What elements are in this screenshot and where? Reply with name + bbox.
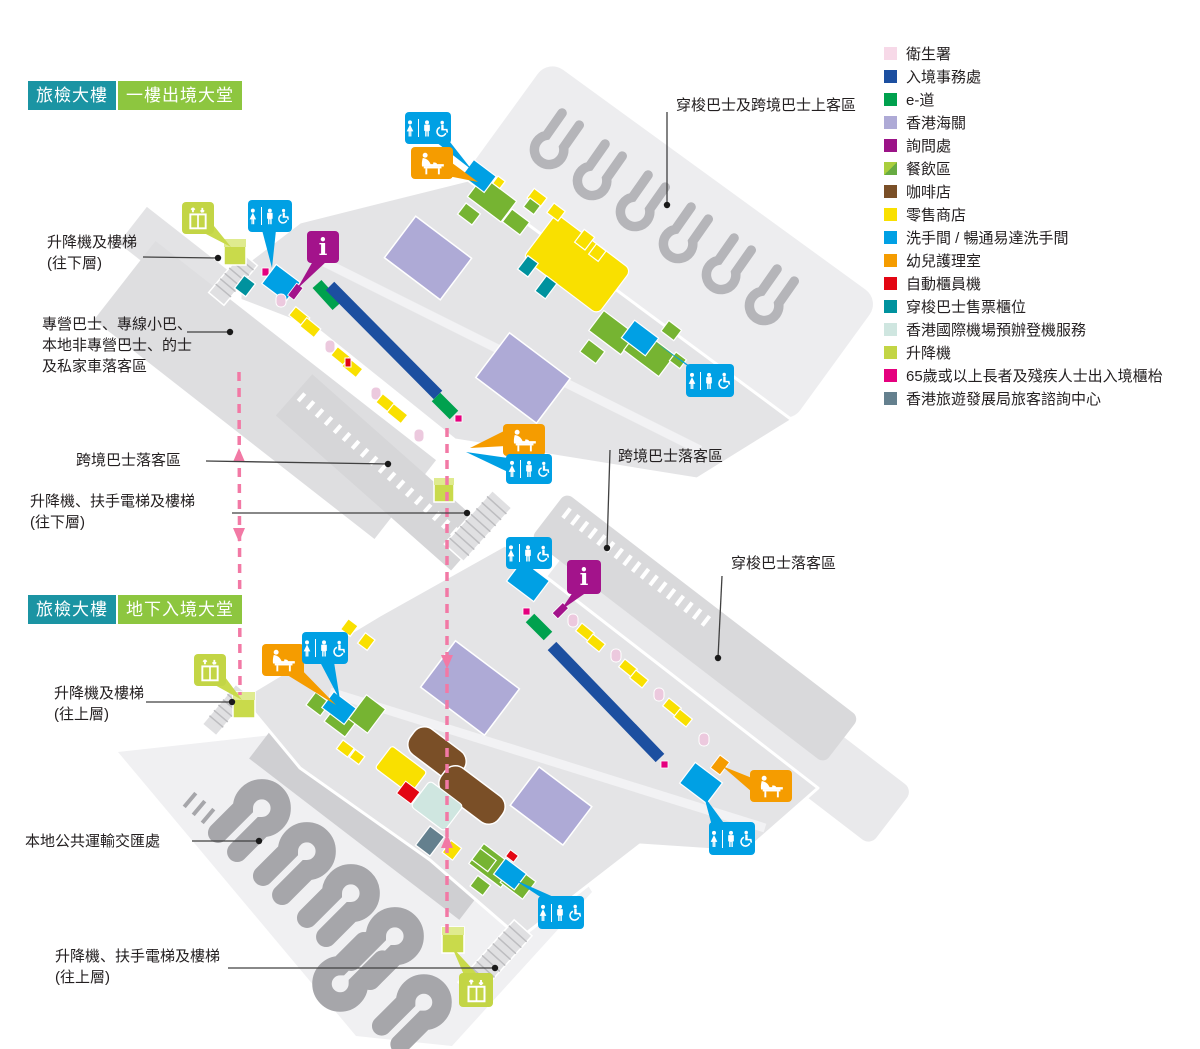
legend-swatch: [884, 254, 897, 267]
legend-item: 自動櫃員機: [884, 272, 1163, 295]
legend-label: 幼兒護理室: [906, 250, 981, 271]
hall-name: 一樓出境大堂: [118, 81, 242, 110]
upper-floor-map: [94, 59, 880, 570]
lower-hall-title: 旅檢大樓 地下入境大堂: [28, 595, 242, 624]
building-name: 旅檢大樓: [28, 81, 116, 110]
toilet-icon: [248, 200, 292, 232]
label-crossborder-dropoff-right: 跨境巴士落客區: [618, 446, 723, 467]
legend-label: 自動櫃員機: [906, 273, 981, 294]
legend-swatch: [884, 139, 897, 152]
toilet-icon: [302, 632, 348, 664]
baby-care-icon: [262, 644, 304, 676]
baby-care-icon: [503, 424, 545, 456]
building-name: 旅檢大樓: [28, 595, 116, 624]
legend-label: 詢問處: [906, 135, 951, 156]
legend: 衛生署 入境事務處 e-道 香港海關 詢問處 餐飲區 咖啡店 零售商店 洗手間 …: [884, 42, 1163, 410]
legend-item: 咖啡店: [884, 180, 1163, 203]
legend-swatch: [884, 300, 897, 313]
legend-label: 香港國際機場預辦登機服務: [906, 319, 1086, 340]
baby-care-icon: [411, 147, 453, 179]
label-public-transport-interchange: 本地公共運輸交匯處: [25, 831, 160, 852]
legend-swatch: [884, 208, 897, 221]
toilet-icon: [506, 537, 552, 569]
information-icon: i: [307, 231, 339, 263]
legend-item: 香港海關: [884, 111, 1163, 134]
legend-swatch: [884, 47, 897, 60]
toilet-icon: [709, 822, 755, 855]
legend-item: 餐飲區: [884, 157, 1163, 180]
lift-icon: [194, 654, 226, 686]
legend-item: 升降機: [884, 341, 1163, 364]
label-shuttle-dropoff: 穿梭巴士落客區: [731, 553, 836, 574]
legend-swatch: [884, 369, 897, 382]
legend-label: 入境事務處: [906, 66, 981, 87]
legend-item: 香港國際機場預辦登機服務: [884, 318, 1163, 341]
label-lift-escalator-down: 升降機、扶手電梯及樓梯 (往下層): [30, 491, 195, 533]
legend-swatch: [884, 392, 897, 405]
legend-item: 香港旅遊發展局旅客諮詢中心: [884, 387, 1163, 410]
legend-swatch: [884, 231, 897, 244]
baby-care-icon: [750, 770, 792, 802]
legend-label: 餐飲區: [906, 158, 951, 179]
legend-item: 65歲或以上長者及殘疾人士出入境櫃枱: [884, 364, 1163, 387]
lift-block-upper-centre: [434, 478, 454, 502]
label-crossborder-dropoff-left: 跨境巴士落客區: [76, 450, 181, 471]
legend-label: 香港旅遊發展局旅客諮詢中心: [906, 388, 1101, 409]
legend-swatch: [884, 116, 897, 129]
legend-swatch: [884, 277, 897, 290]
label-shuttle-crossborder-boarding: 穿梭巴士及跨境巴士上客區: [676, 95, 856, 116]
legend-item: 洗手間 / 暢通易達洗手間: [884, 226, 1163, 249]
legend-label: 咖啡店: [906, 181, 951, 202]
legend-item: 穿梭巴士售票櫃位: [884, 295, 1163, 318]
legend-label: 洗手間 / 暢通易達洗手間: [906, 227, 1069, 248]
information-icon: i: [567, 560, 601, 594]
toilet-icon: [538, 896, 584, 929]
legend-label: 零售商店: [906, 204, 966, 225]
toilet-icon: [686, 364, 734, 397]
legend-label: 升降機: [906, 342, 951, 363]
legend-label: 穿梭巴士售票櫃位: [906, 296, 1026, 317]
border-facility-floorplan-infographic: 旅檢大樓 一樓出境大堂 旅檢大樓 地下入境大堂 i: [0, 0, 1200, 1049]
toilet-icon: [506, 454, 552, 484]
legend-swatch: [884, 70, 897, 83]
label-lift-stairs-down: 升降機及樓梯 (往下層): [47, 232, 137, 274]
legend-item: 入境事務處: [884, 65, 1163, 88]
lower-floor-map: [118, 492, 913, 1048]
senior-disabled-counter: [455, 415, 462, 422]
toilet-icon: [405, 112, 451, 144]
legend-item: 零售商店: [884, 203, 1163, 226]
legend-item: 幼兒護理室: [884, 249, 1163, 272]
legend-swatch: [884, 162, 897, 175]
legend-item: 衛生署: [884, 42, 1163, 65]
legend-item: e-道: [884, 88, 1163, 111]
atm-block: [345, 358, 351, 367]
senior-disabled-counter: [523, 608, 530, 615]
legend-swatch: [884, 323, 897, 336]
legend-label: 香港海關: [906, 112, 966, 133]
legend-swatch: [884, 346, 897, 359]
legend-swatch: [884, 93, 897, 106]
label-lift-stairs-up: 升降機及樓梯 (往上層): [54, 683, 144, 725]
legend-label: 衛生署: [906, 43, 951, 64]
legend-swatch: [884, 185, 897, 198]
senior-disabled-counter: [661, 761, 668, 768]
legend-label: 65歲或以上長者及殘疾人士出入境櫃枱: [906, 365, 1163, 386]
lift-icon: [182, 202, 214, 234]
upper-hall-title: 旅檢大樓 一樓出境大堂: [28, 81, 242, 110]
legend-item: 詢問處: [884, 134, 1163, 157]
label-lift-escalator-up: 升降機、扶手電梯及樓梯 (往上層): [55, 946, 220, 988]
hall-name: 地下入境大堂: [118, 595, 242, 624]
label-franchised-bus-dropoff: 專營巴士、專線小巴、 本地非專營巴士、的士 及私家車落客區: [42, 314, 192, 377]
lift-icon: [459, 973, 493, 1007]
legend-label: e-道: [906, 89, 934, 110]
